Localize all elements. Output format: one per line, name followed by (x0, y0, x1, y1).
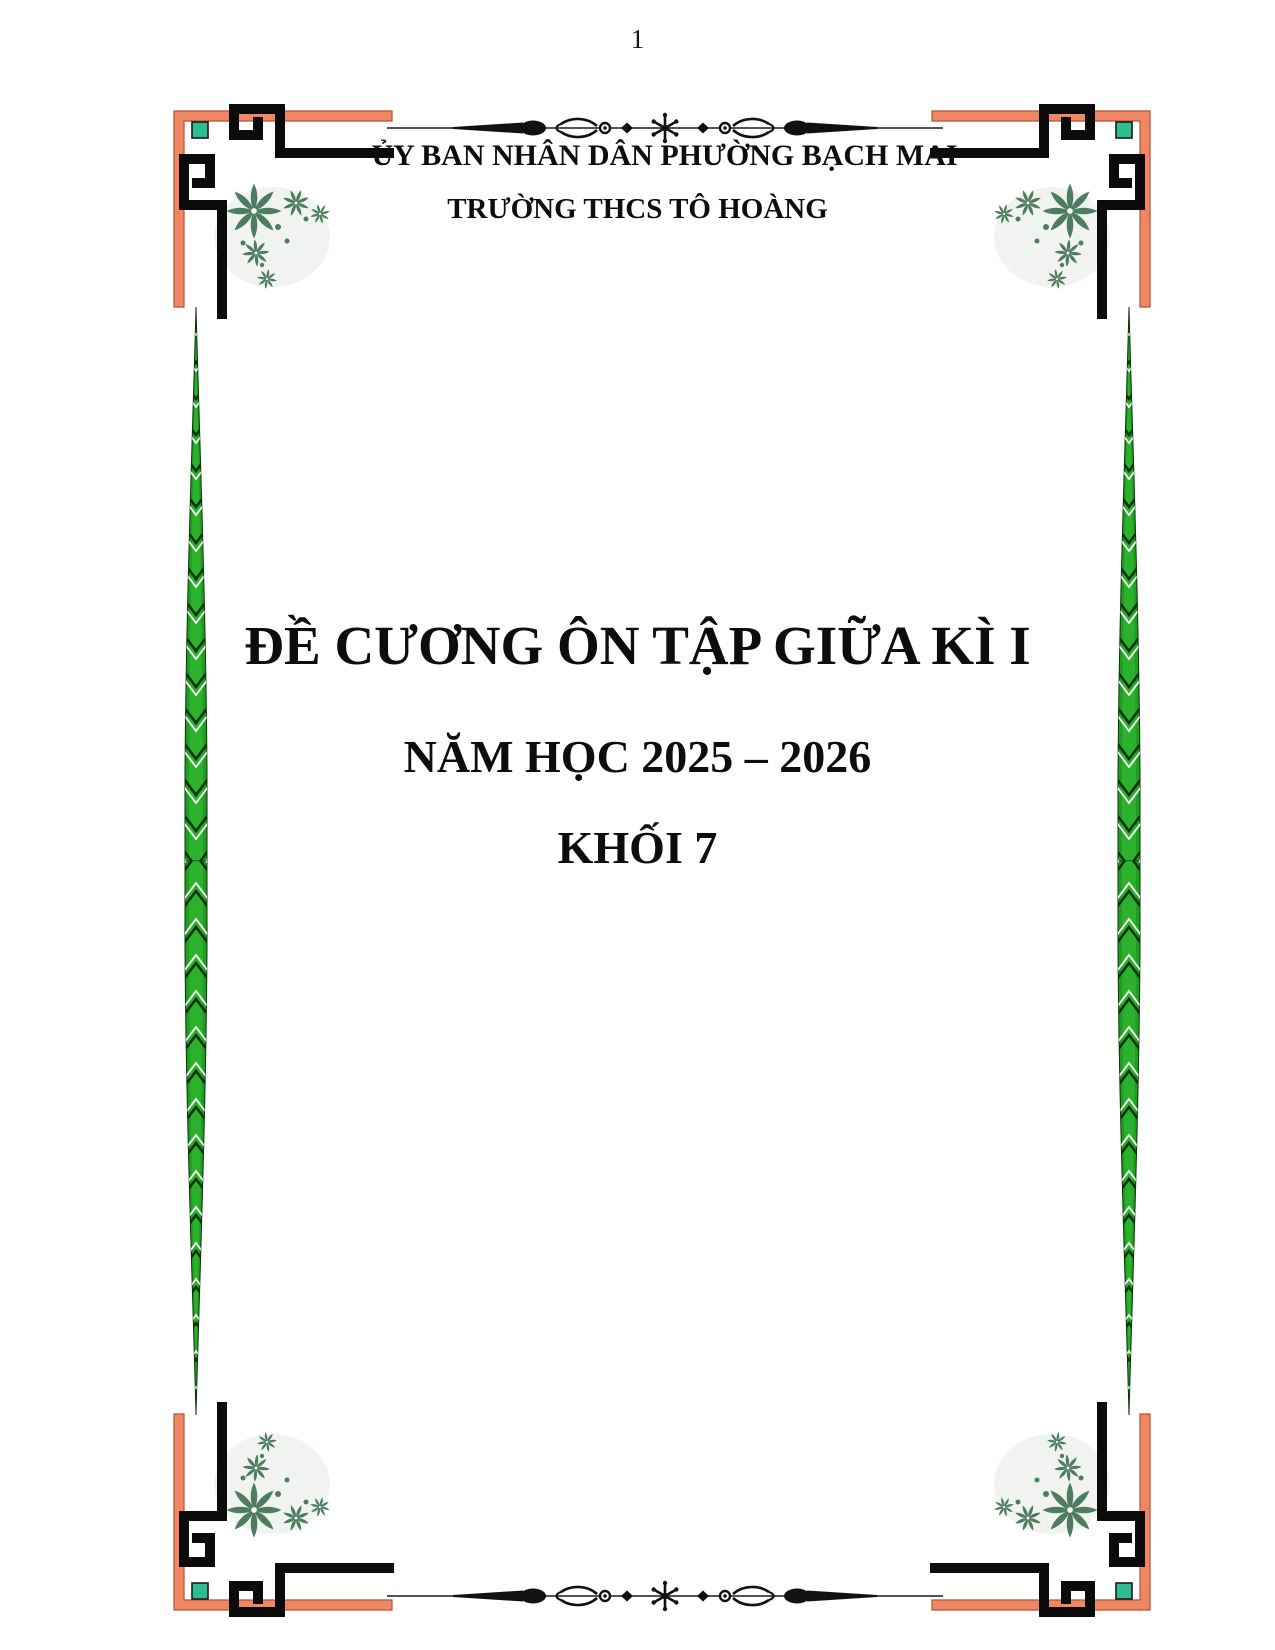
header-school-name: TRƯỜNG THCS TÔ HOÀNG (0, 193, 1275, 226)
school-year: NĂM HỌC 2025 – 2026 (0, 731, 1275, 784)
corner-ornament-bottom-right-icon (914, 1386, 1154, 1626)
grade-level: KHỐI 7 (0, 822, 1275, 875)
document-title: ĐỀ CƯƠNG ÔN TẬP GIỮA KÌ I (0, 614, 1275, 677)
ornamental-divider-bottom-icon (385, 1574, 945, 1618)
document-page: 1 ỦY BAN NHÂN DÂN PHƯỜNG BẠCH MAI TRƯỜNG… (0, 0, 1275, 1650)
page-number: 1 (0, 24, 1275, 55)
corner-ornament-bottom-left-icon (170, 1386, 410, 1626)
header-org-name: ỦY BAN NHÂN DÂN PHƯỜNG BẠCH MAI (27, 139, 1275, 174)
